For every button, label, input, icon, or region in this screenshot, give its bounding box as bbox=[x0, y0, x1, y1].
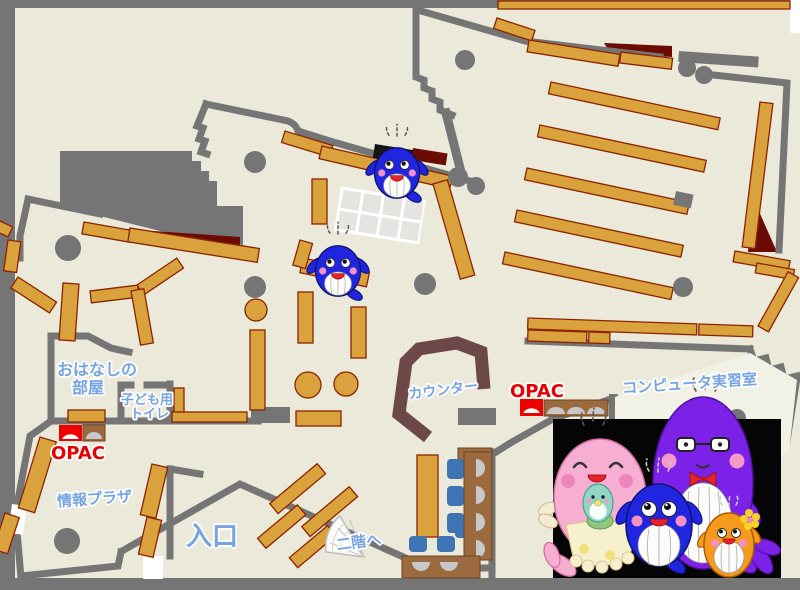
label-storytelling-room-line1: おはなしの bbox=[57, 360, 137, 379]
baby-whale-icon bbox=[583, 484, 613, 529]
label-opac-right: OPAC bbox=[510, 381, 564, 402]
counter-back-desk bbox=[458, 408, 496, 425]
label-opac-left: OPAC bbox=[51, 443, 105, 464]
library-floor-map: おはなしの 部屋 子ども用 トイレ OPAC 情報プラザ 入口 二階へ カウンタ… bbox=[0, 0, 800, 590]
label-storytelling-room-line2: 部屋 bbox=[72, 378, 104, 397]
label-entrance: 入口 bbox=[186, 522, 238, 552]
opac-terminal-left bbox=[59, 425, 105, 441]
label-kids-toilet-line1: 子ども用 bbox=[121, 393, 173, 408]
label-kids-toilet-line2: トイレ bbox=[130, 407, 169, 422]
door-gap bbox=[143, 556, 163, 579]
top-edge-shelf bbox=[498, 1, 790, 9]
floor-map-canvas: おはなしの 部屋 子ども用 トイレ OPAC 情報プラザ 入口 二階へ カウンタ… bbox=[0, 0, 800, 590]
